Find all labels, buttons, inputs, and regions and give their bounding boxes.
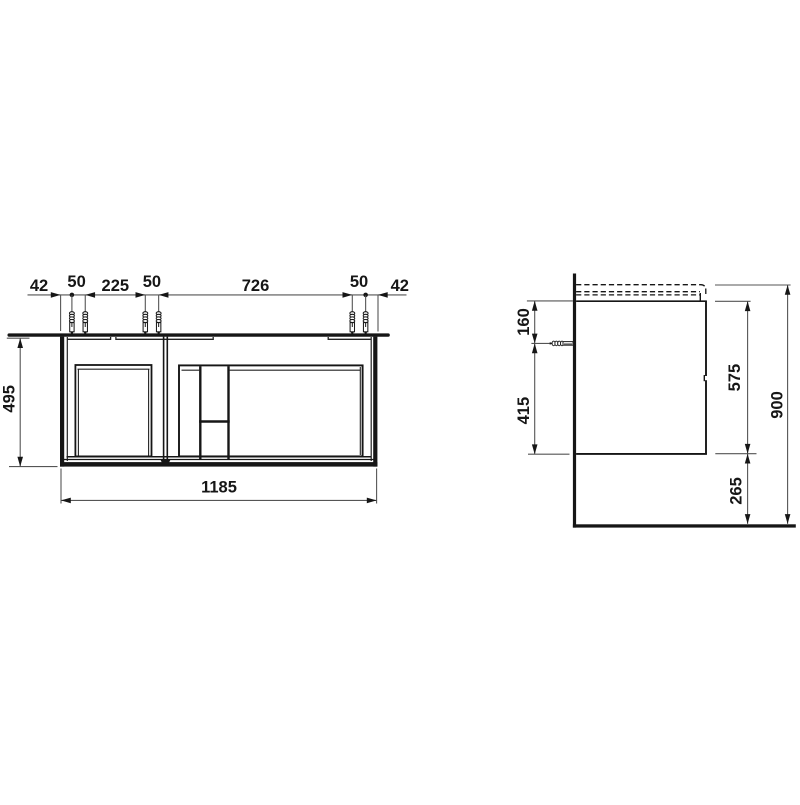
svg-text:50: 50 bbox=[350, 273, 368, 291]
svg-text:265: 265 bbox=[728, 477, 746, 505]
svg-text:415: 415 bbox=[515, 397, 533, 425]
svg-text:42: 42 bbox=[391, 277, 409, 295]
svg-text:42: 42 bbox=[30, 277, 48, 295]
svg-text:575: 575 bbox=[726, 364, 744, 392]
svg-text:495: 495 bbox=[1, 385, 19, 413]
svg-text:50: 50 bbox=[67, 273, 85, 291]
svg-text:900: 900 bbox=[768, 391, 786, 419]
svg-text:225: 225 bbox=[102, 277, 130, 295]
svg-text:726: 726 bbox=[242, 277, 270, 295]
svg-text:50: 50 bbox=[143, 273, 161, 291]
svg-text:160: 160 bbox=[515, 308, 533, 336]
svg-text:1185: 1185 bbox=[201, 479, 237, 497]
